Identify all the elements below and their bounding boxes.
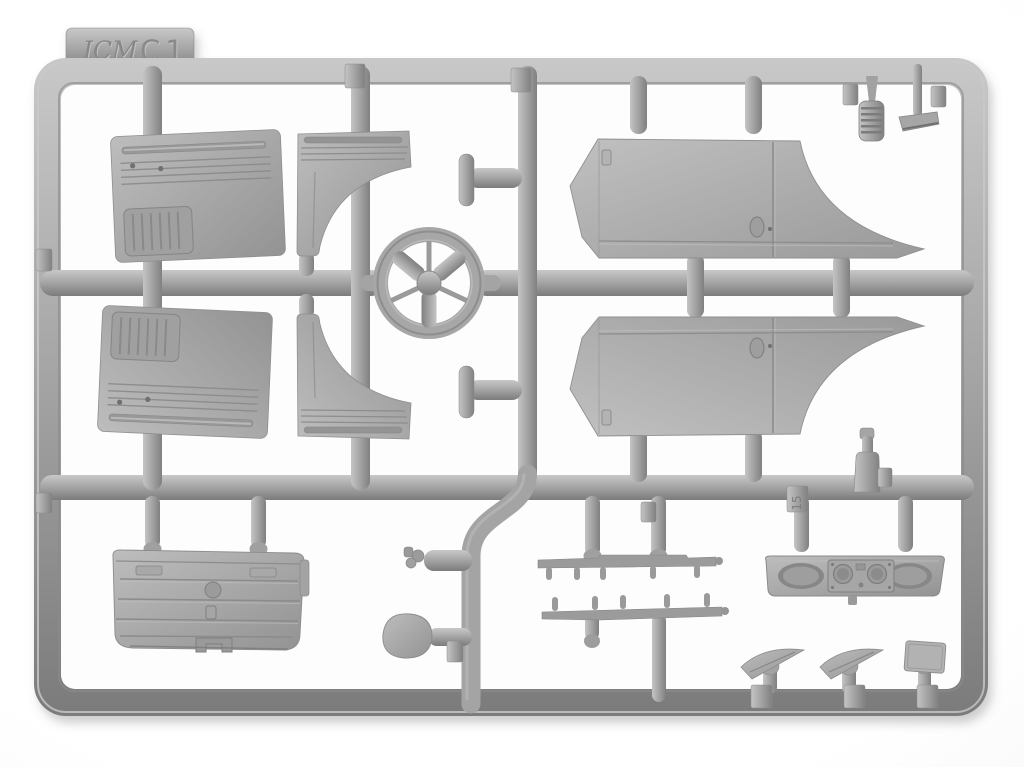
tab-left-lower	[36, 493, 52, 513]
photo-model-kit-sprue: ICM ICM C1 C1	[0, 0, 1024, 767]
tab-mid	[641, 502, 656, 522]
tab-top-right-1	[843, 84, 858, 105]
tab-bottom-1	[751, 685, 772, 708]
tab-15-number: 15	[790, 495, 804, 510]
sprue-illustration: ICM ICM C1 C1	[0, 0, 1024, 767]
part-rear-cab-panel	[113, 550, 309, 652]
part-door-inner-panel-lower	[97, 305, 272, 438]
tab-left-upper	[36, 249, 52, 271]
tab-gear-lever	[878, 468, 892, 487]
sprue-plastic: ICM ICM C1 C1	[34, 28, 988, 716]
tab-bottom-3	[917, 685, 938, 708]
tab-top-right-2	[931, 86, 946, 107]
part-door-inner-panel-upper	[110, 129, 285, 262]
tab-top-1	[345, 64, 365, 88]
tab-top-2	[511, 68, 531, 92]
tab-bottom-2	[844, 685, 865, 708]
tab-curve	[447, 641, 463, 662]
